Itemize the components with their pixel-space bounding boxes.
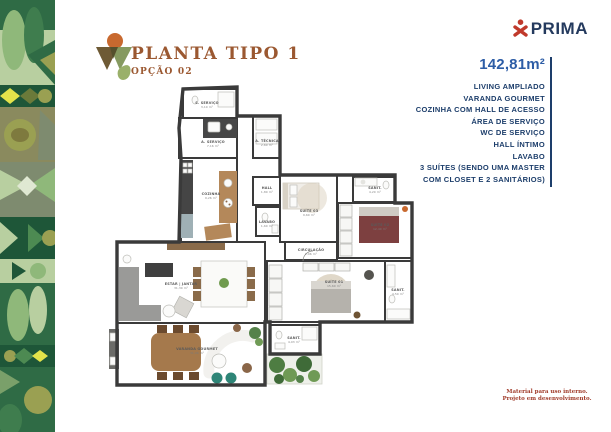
brand-name: PRIMA: [531, 19, 588, 39]
room-label: SUÍTE 0212,40 m²: [371, 222, 390, 231]
disclaimer-note: Material para uso interno. Projeto em de…: [467, 389, 611, 403]
room-label: SANIT.4,50 m²: [391, 288, 404, 296]
decorative-pattern-strip: [0, 0, 55, 432]
room-label: SANIT.4,20 m²: [368, 186, 381, 194]
floor-plan: S. SERVIÇO3,10 m²A. SERVIÇO7,16 m²A. TÉC…: [107, 85, 439, 403]
flyer-page: PLANTA TIPO 1 OPÇÃO 02 PRIMA 142,81m² LI…: [0, 0, 611, 432]
area-value: 142,81m²: [315, 56, 545, 73]
room-label: COZINHA9,26 m²: [202, 192, 221, 200]
page-title: PLANTA TIPO 1: [131, 44, 301, 64]
planta-logo-icon: [94, 32, 134, 84]
room-label: A. SERVIÇO7,16 m²: [201, 140, 225, 148]
room-label: SUÍTE 0115,60 m²: [325, 279, 344, 288]
room-label: CIRCULAÇÃO2,06 m²: [298, 247, 324, 256]
room-label: SUÍTE 039,60 m²: [300, 208, 319, 217]
page-subtitle: OPÇÃO 02: [131, 67, 301, 77]
room-label: ESTAR | JANTAR31,30 m²: [165, 282, 198, 290]
room-label: HALL1,80 m²: [261, 186, 273, 194]
specs-divider-line: [550, 57, 552, 187]
disclaimer-line2: Projeto em desenvolvimento.: [467, 396, 611, 403]
prima-logo-icon: [513, 19, 528, 39]
room-label: S. SERVIÇO3,10 m²: [195, 101, 219, 109]
plan-furniture: [109, 92, 410, 384]
prima-brand: PRIMA: [513, 19, 588, 39]
disclaimer-line1: Material para uso interno.: [467, 389, 611, 396]
room-label: LAVABO1,60 m²: [259, 220, 275, 228]
room-label: SANIT.4,03 m²: [287, 336, 300, 344]
room-label: A. TÉCNICA2,60 m²: [255, 138, 279, 147]
